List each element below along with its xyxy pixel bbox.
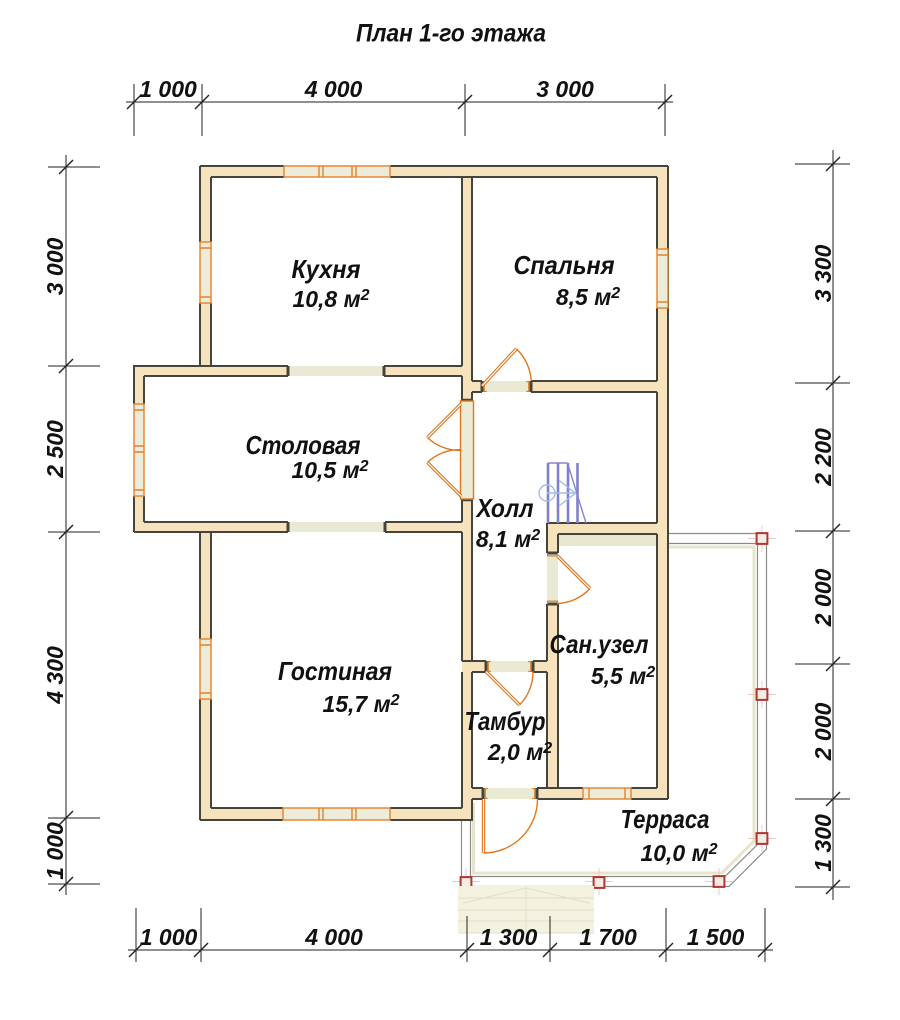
svg-text:Холл: Холл	[475, 493, 534, 523]
svg-text:1 700: 1 700	[579, 924, 637, 950]
svg-text:План 1-го этажа: План 1-го этажа	[356, 20, 546, 48]
svg-text:15,7 м2: 15,7 м2	[322, 691, 399, 717]
svg-text:Столовая: Столовая	[246, 430, 361, 460]
svg-text:Терраса: Терраса	[621, 804, 710, 834]
svg-text:1 500: 1 500	[687, 924, 745, 950]
svg-text:3 000: 3 000	[42, 238, 68, 296]
svg-text:4 000: 4 000	[304, 76, 363, 102]
svg-text:2 500: 2 500	[42, 420, 68, 479]
svg-text:4 300: 4 300	[42, 646, 68, 705]
svg-text:Сан.узел: Сан.узел	[550, 629, 649, 659]
svg-text:3 300: 3 300	[810, 245, 836, 303]
svg-text:8,1 м2: 8,1 м2	[476, 526, 540, 552]
svg-text:4 000: 4 000	[304, 924, 363, 950]
svg-text:5,5 м2: 5,5 м2	[591, 663, 655, 689]
svg-text:1 000: 1 000	[140, 924, 198, 950]
svg-text:Тамбур: Тамбур	[465, 706, 546, 736]
svg-text:1 000: 1 000	[42, 822, 68, 880]
svg-text:1 300: 1 300	[480, 924, 538, 950]
svg-text:2 000: 2 000	[810, 703, 836, 762]
svg-text:Гостиная: Гостиная	[278, 656, 392, 686]
svg-text:2 200: 2 200	[810, 428, 836, 487]
svg-text:2,0 м2: 2,0 м2	[487, 739, 552, 765]
svg-text:10,8 м2: 10,8 м2	[292, 286, 369, 312]
svg-text:2 000: 2 000	[810, 569, 836, 628]
svg-text:3 000: 3 000	[536, 76, 594, 102]
svg-text:1 000: 1 000	[139, 76, 197, 102]
svg-text:10,5 м2: 10,5 м2	[291, 457, 368, 483]
svg-text:1 300: 1 300	[810, 814, 836, 872]
svg-text:8,5 м2: 8,5 м2	[556, 284, 620, 310]
svg-text:10,0 м2: 10,0 м2	[640, 840, 717, 866]
svg-text:Спальня: Спальня	[514, 250, 615, 280]
svg-text:Кухня: Кухня	[292, 254, 361, 284]
